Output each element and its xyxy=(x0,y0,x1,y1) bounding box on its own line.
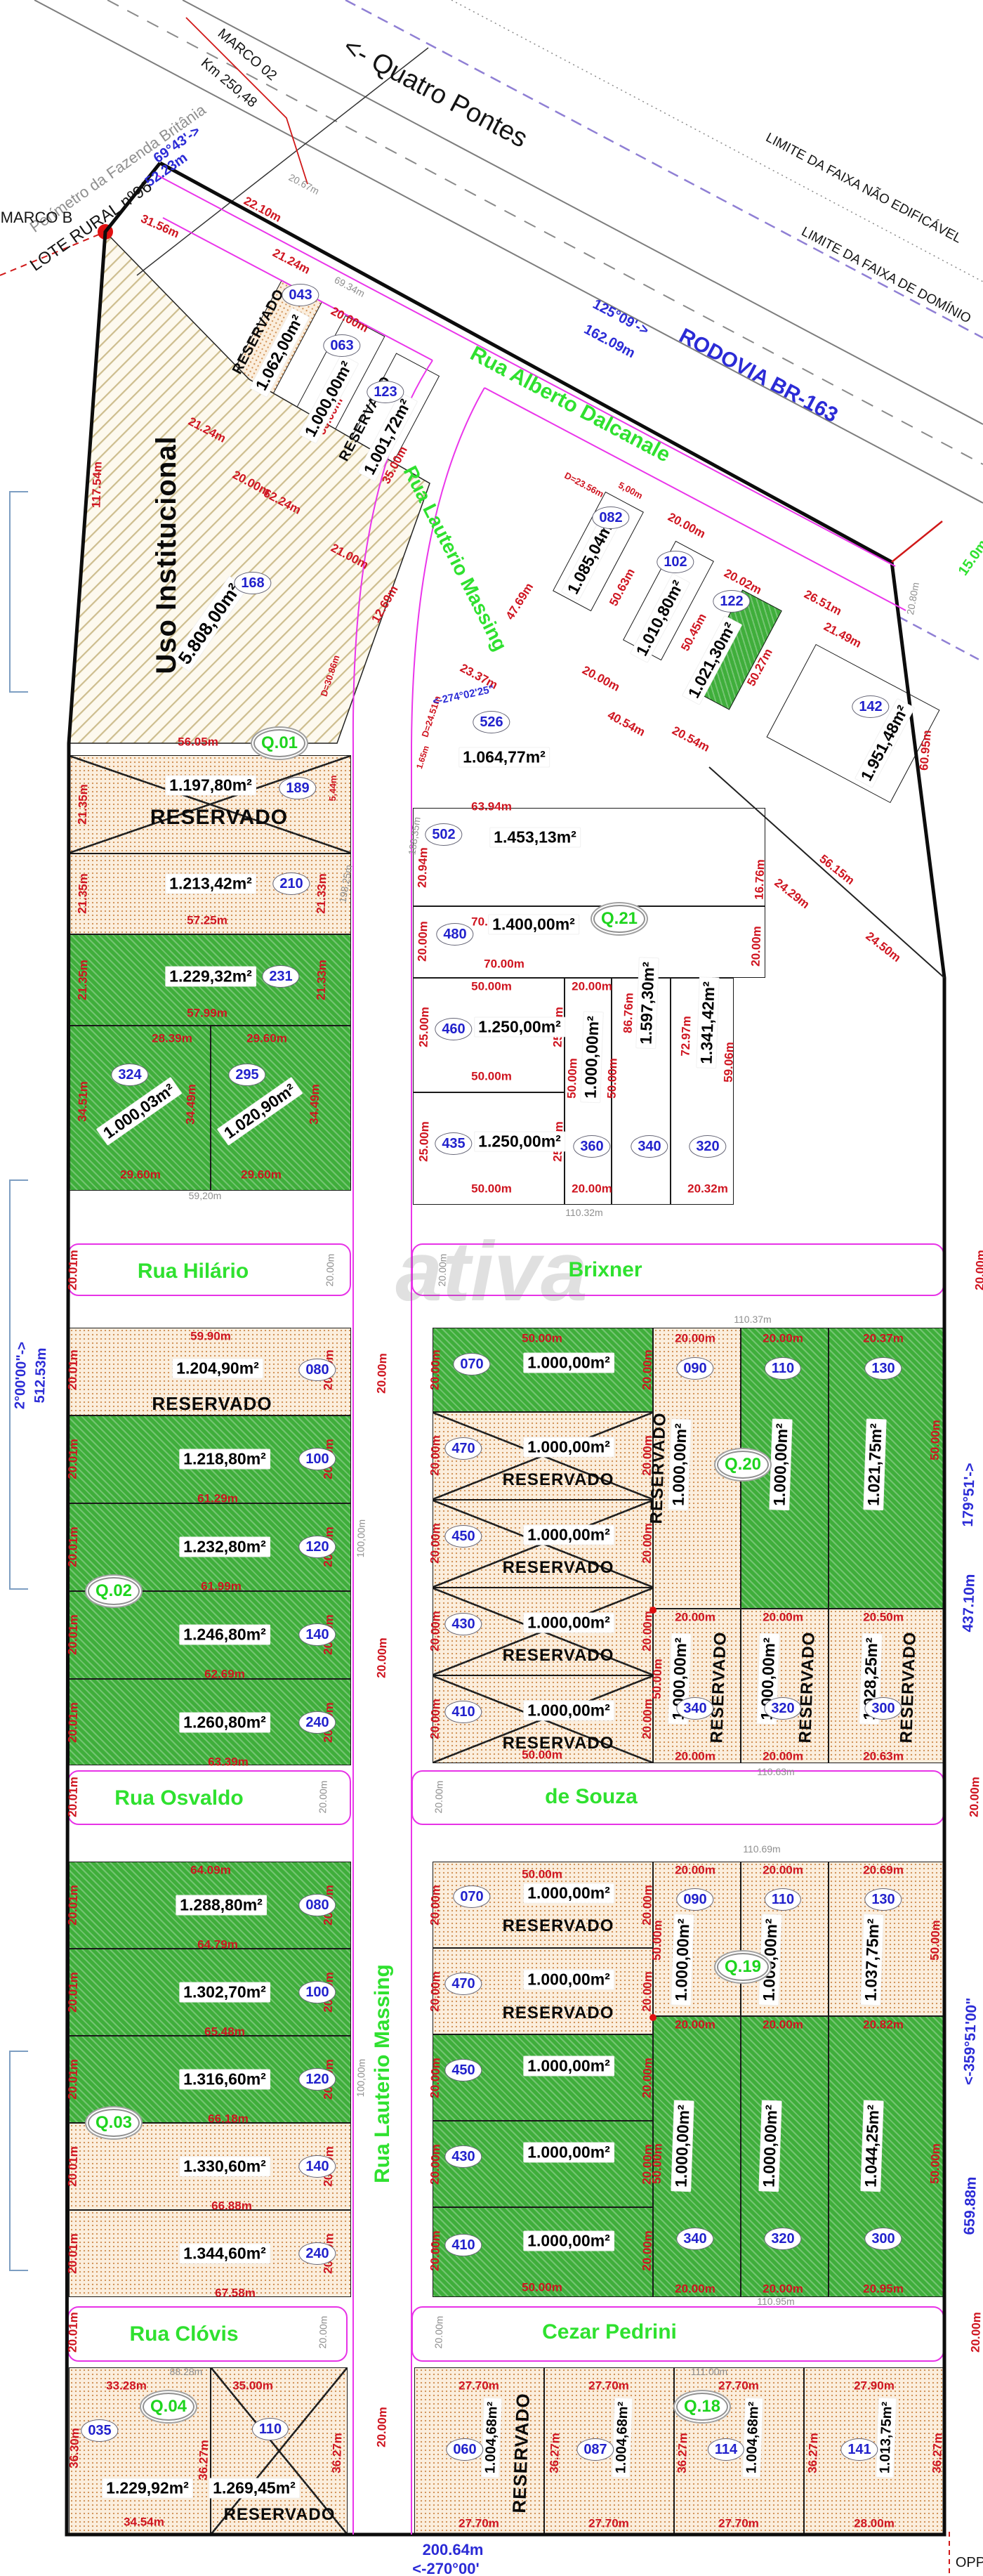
dimension-label: 20.00m xyxy=(675,1864,715,1876)
faixa-dominio-line xyxy=(345,0,983,338)
dimension-label: 34.54m xyxy=(124,2516,164,2528)
dimension-label: 50.00m xyxy=(928,1920,942,1961)
lot-area-label: 1.597,30m² xyxy=(635,957,659,1050)
dimension-gray-label: 20.00m xyxy=(433,2315,444,2348)
lot-number: 295 xyxy=(228,1064,265,1086)
dimension-label: 20.00m xyxy=(675,1333,715,1345)
dimension-label: 29.60m xyxy=(120,1169,161,1181)
lot-rect xyxy=(741,1862,829,2016)
lot-number: 140 xyxy=(298,2155,336,2178)
lot-number: 435 xyxy=(435,1132,472,1155)
dimension-label: 67.58m xyxy=(215,2287,256,2299)
dimension-label: 20.00m xyxy=(375,1637,388,1678)
dimension-label: 20.00m xyxy=(428,1349,442,1390)
dimension-label: 20.00m xyxy=(973,1250,983,1290)
dimension-label: 20.82m xyxy=(863,2019,904,2031)
lot-area-label: 1.000,00m² xyxy=(523,2056,614,2077)
dimension-gray-label: 110.69m xyxy=(743,1844,780,1854)
dimension-label: 20.00m xyxy=(640,1523,654,1564)
lot-area-label: 1.000,00m² xyxy=(523,2143,614,2163)
dimension-label: 20.00m xyxy=(666,511,708,540)
lot-number: 502 xyxy=(425,823,462,846)
dimension-label: 20.50m xyxy=(863,1611,904,1623)
dimension-label: 5,44m xyxy=(328,775,338,801)
dimension-label: 20.00m xyxy=(763,1611,803,1623)
dimension-label: 21.35m xyxy=(76,784,89,825)
dimension-label: 34.49m xyxy=(184,1084,197,1125)
lot-area-label: 5.808,00m² xyxy=(171,575,247,672)
dimension-gray-label: 20.00m xyxy=(437,1253,448,1286)
dimension-label: 36.27m xyxy=(197,2440,210,2480)
dimension-label: 117.54m xyxy=(90,462,103,509)
lot-area-label: 1.453,13m² xyxy=(489,828,581,848)
lot-number: 063 xyxy=(323,334,360,357)
lot-number: 240 xyxy=(298,1711,336,1734)
dimension-label: 50.00m xyxy=(928,2143,942,2184)
reservado-label: RESERVADO xyxy=(152,1394,272,1413)
dimension-label: 28.39m xyxy=(152,1033,192,1045)
dimension-label: 20.32m xyxy=(687,1183,728,1195)
dimension-gray-label: 100,00m xyxy=(355,2059,367,2098)
lot-area-label: 1.000,00m² xyxy=(758,2100,782,2192)
lot-area-label: 1.218,80m² xyxy=(179,1449,270,1470)
dimension-label: 21.33m xyxy=(315,960,328,1000)
survey-note: 2°00'00"-> xyxy=(13,1342,29,1410)
dimension-label: 20.01m xyxy=(66,2233,79,2274)
lot-rect xyxy=(829,1862,944,2016)
lot-area-label: 1.330,60m² xyxy=(179,2157,270,2177)
reservado-label: RESERVADO xyxy=(503,1735,614,1752)
reservado-label: RESERVADO xyxy=(224,2506,336,2523)
lot-number: 120 xyxy=(298,1536,336,1558)
corner-red-segment xyxy=(892,521,942,562)
lot-number: 130 xyxy=(864,1888,902,1911)
dimension-label: 20.00m xyxy=(969,2312,982,2353)
lot-area-label: 1.000,00m² xyxy=(523,1883,614,1904)
lot-number: 043 xyxy=(282,284,319,306)
lot-number: 070 xyxy=(453,1885,490,1908)
lot-number: 430 xyxy=(444,1613,482,1635)
dimension-label: 20.00m xyxy=(640,1699,654,1739)
lot-number: 070 xyxy=(453,1353,490,1375)
dimension-label: 20.01m xyxy=(66,1614,79,1655)
street-name: Rua Alberto Dalcanale xyxy=(467,343,673,466)
dimension-gray-label: 20.80m xyxy=(905,582,921,615)
lot-number: 082 xyxy=(592,506,629,529)
map-note: MARCO B xyxy=(1,210,73,225)
street-name: Rua Osvaldo xyxy=(114,1788,243,1809)
reservado-label: RESERVADO xyxy=(898,1631,919,1744)
dimension-label: 28.00m xyxy=(854,2518,895,2530)
lot-number: 480 xyxy=(436,923,473,946)
lot-number: 460 xyxy=(435,1018,472,1040)
street-name: 15.0m xyxy=(956,537,983,578)
dimension-label: 50.00m xyxy=(650,1920,664,1961)
lot-number: 130 xyxy=(864,1357,902,1380)
dimension-label: 61.99m xyxy=(201,1581,242,1593)
dimension-label: 47.69m xyxy=(504,581,536,622)
dimension-label: 50.63m xyxy=(607,567,637,608)
lot-area-label: 1.000,00m² xyxy=(769,1419,793,1511)
street-band xyxy=(411,2306,944,2362)
street-name: Cezar Pedrini xyxy=(542,2322,677,2343)
dimension-label: 27.70m xyxy=(458,2380,499,2392)
lot-number: 142 xyxy=(852,695,889,718)
lot-area-label: 1.064,77m² xyxy=(458,747,550,768)
lot-number: 340 xyxy=(676,1697,713,1720)
dimension-label: 20.00m xyxy=(640,1971,654,2012)
dimension-label: 50.00m xyxy=(522,1333,562,1345)
dimension-label: D=30.86m xyxy=(319,654,341,698)
dimension-label: 25.00m xyxy=(417,1007,430,1047)
lot-number: 300 xyxy=(864,1697,902,1720)
dimension-label: 36.27m xyxy=(330,2433,343,2473)
dimension-label: 35.00m xyxy=(232,2380,273,2392)
street-name: Rua Hilário xyxy=(138,1261,249,1282)
dimension-label: 20.00m xyxy=(763,1864,803,1876)
faixa-nao-edificavel-line xyxy=(451,0,983,282)
lot-area-label: 1.000,00m² xyxy=(671,1914,694,2006)
lot-number: 340 xyxy=(676,2228,713,2250)
dimension-label: 63.94m xyxy=(471,801,512,813)
lot-area-label: 1.232,80m² xyxy=(179,1537,270,1557)
dimension-label: 20.63m xyxy=(863,1751,904,1763)
lot-number: 360 xyxy=(573,1135,610,1158)
survey-note: 437.10m xyxy=(961,1574,977,1633)
dimension-label: 21.35m xyxy=(76,873,89,914)
lot-area-label: 1.000,00m² xyxy=(523,1437,614,1458)
dimension-label: 20.00m xyxy=(581,664,622,693)
quadra-badge: Q.18 xyxy=(676,2393,728,2421)
map-note: <- Quatro Pontes xyxy=(339,33,532,152)
quadra-badge: Q.02 xyxy=(88,1577,140,1605)
lot-number: 450 xyxy=(444,1525,482,1548)
survey-note: RODOVIA BR-163 xyxy=(675,325,840,426)
dimension-label: 27.70m xyxy=(718,2380,759,2392)
reservado-label: RESERVADO xyxy=(503,2005,614,2022)
dimension-label: 59.06m xyxy=(722,1042,735,1083)
lot-area-label: 1.013,75m² xyxy=(876,2397,897,2478)
dimension-label: 25.00m xyxy=(417,1121,430,1162)
dimension-label: 64.79m xyxy=(197,1939,238,1951)
dimension-label: 20.00m xyxy=(572,1183,612,1195)
lot-number: 141 xyxy=(840,2438,878,2461)
street-name: Rua Lauterio Massing xyxy=(372,1964,393,2183)
reservado-label: RESERVADO xyxy=(648,1412,669,1524)
dimension-label: 20.00m xyxy=(428,2230,442,2271)
dimension-label: 20.00m xyxy=(428,2058,442,2098)
lot-area-label: 1.037,75m² xyxy=(860,1914,884,2006)
lot-area-label: 1.004,68m² xyxy=(612,2397,633,2478)
lot-number: 060 xyxy=(446,2438,483,2461)
street-name: Rua Clóvis xyxy=(129,2324,238,2345)
lot-rect xyxy=(741,2016,829,2297)
dimension-label: 29.60m xyxy=(246,1033,287,1045)
street-name: Rua Lauterio Massing xyxy=(400,463,510,654)
lot-area-label: 1.000,00m² xyxy=(523,2231,614,2251)
lot-area-label: 1.000,00m² xyxy=(523,1353,614,1373)
street-band xyxy=(411,1770,944,1825)
dimension-gray-label: 69.34m xyxy=(333,275,367,299)
lot-area-label: 1.000,00m² xyxy=(523,1525,614,1545)
dimension-label: 86.76m xyxy=(621,993,635,1033)
lot-area-label: 1.400,00m² xyxy=(488,915,579,935)
dimension-label: 20.37m xyxy=(863,1333,904,1345)
dimension-label: 21.24m xyxy=(271,247,312,276)
dimension-label: 21.33m xyxy=(315,873,328,914)
dimension-label: 20.01m xyxy=(66,1439,79,1479)
dimension-gray-label: 110.95m xyxy=(757,2296,794,2306)
dimension-gray-label: 111.00m xyxy=(691,2367,727,2376)
dimension-label: 26.51m xyxy=(803,588,844,617)
dimension-gray-label: 88.28m xyxy=(170,2367,203,2376)
dimension-label: 72.97m xyxy=(679,1016,692,1057)
dimension-label: 50.00m xyxy=(471,981,512,993)
dimension-label: 50.00m xyxy=(471,1183,512,1195)
dimension-label: 21.35m xyxy=(76,960,89,1000)
dimension-label: 65.48m xyxy=(204,2026,245,2038)
reservado-label: Uso Institucional xyxy=(152,436,180,674)
dimension-label: 20.54m xyxy=(671,724,712,754)
lot-area-label: 1.197,80m² xyxy=(165,776,256,796)
dimension-label: 20.00m xyxy=(375,2407,388,2447)
reservado-label: RESERVADO xyxy=(797,1631,818,1744)
dimension-label: 20.00m xyxy=(640,1349,654,1390)
dimension-label: 66.88m xyxy=(211,2200,252,2212)
lot-number: 470 xyxy=(444,1973,482,1995)
watermark: ativa xyxy=(395,1229,588,1314)
lot-number: 168 xyxy=(234,572,271,594)
dimension-label: 36.27m xyxy=(548,2433,561,2473)
lot-number: 324 xyxy=(111,1064,148,1086)
dimension-label: 62.24m xyxy=(262,487,303,516)
dimension-label: 20.00m xyxy=(640,1611,654,1652)
dimension-label: 20.01m xyxy=(66,1526,79,1567)
dimension-label: 27.70m xyxy=(588,2518,629,2530)
dimension-label: 50.00m xyxy=(522,2282,562,2294)
lot-area-label: 1.000,00m² xyxy=(523,1613,614,1633)
lot-area-label: 1.302,70m² xyxy=(179,1982,270,2003)
lot-number: 123 xyxy=(367,381,404,403)
lot-area-label: 1.044,25m² xyxy=(860,2100,884,2192)
lot-number: 189 xyxy=(279,777,316,799)
lot-rect xyxy=(69,755,351,854)
dimension-label: 20.01m xyxy=(66,1250,79,1290)
lot-number: 231 xyxy=(262,965,299,988)
lot-number: 110 xyxy=(252,2418,289,2440)
lot-number: 110 xyxy=(765,1888,801,1911)
dimension-label: 56.15m xyxy=(817,853,857,887)
lot-number: 035 xyxy=(81,2419,118,2442)
lot-area-label: 1.288,80m² xyxy=(176,1895,267,1916)
dimension-label: 20.00m xyxy=(763,1751,803,1763)
dimension-label: 27.70m xyxy=(588,2380,629,2392)
dimension-label: 57.25m xyxy=(187,915,227,927)
highway-edge-line xyxy=(183,0,983,424)
reservado-label: RESERVADO xyxy=(510,2393,532,2513)
dimension-label: 20.00m xyxy=(749,926,763,967)
dimension-label: 50.00m xyxy=(650,1659,664,1699)
lot-number: 410 xyxy=(444,2234,482,2256)
dimension-label: 16.76m xyxy=(753,859,766,900)
dimension-label: 33.28m xyxy=(106,2380,147,2392)
dimension-label: 20.00m xyxy=(416,921,429,962)
survey-note: 179°51'-> xyxy=(961,1463,977,1527)
survey-bracket xyxy=(10,2051,28,2270)
reservado-label: RESERVADO xyxy=(503,1647,614,1664)
dimension-label: 20.01m xyxy=(66,1702,79,1743)
dimension-label: 50.00m xyxy=(565,1058,579,1099)
faixa-dominio-line xyxy=(899,617,983,662)
dimension-label: 20.01m xyxy=(66,1885,79,1926)
quadra-badge: Q.21 xyxy=(593,905,645,933)
dimension-gray-label: 20.00m xyxy=(317,2315,329,2348)
dimension-label: 20.00m xyxy=(640,2230,654,2271)
dimension-label: 27.70m xyxy=(718,2518,759,2530)
lot-number: 240 xyxy=(298,2242,336,2265)
lot-number: 320 xyxy=(764,1697,801,1720)
dimension-label: 27.90m xyxy=(854,2380,895,2392)
lot-area-label: 1.000,00m² xyxy=(523,1701,614,1721)
lot-area-label: 1.000,00m² xyxy=(671,2100,694,2192)
lot-area-label: 1.000,00m² xyxy=(523,1970,614,1990)
dimension-label: 12.69m xyxy=(369,584,400,625)
dimension-label: 34.51m xyxy=(76,1081,89,1122)
lot-rect xyxy=(69,2367,211,2535)
dimension-label: 34.49m xyxy=(308,1084,321,1125)
lot-area-label: 1.341,42m² xyxy=(696,977,720,1069)
lot-number: 120 xyxy=(298,2068,336,2091)
lot-number: 300 xyxy=(864,2228,902,2250)
dimension-label: 63.39m xyxy=(208,1756,249,1768)
street-name: de Souza xyxy=(545,1786,638,1807)
reservado-label: RESERVADO xyxy=(503,1918,614,1935)
quadra-badge: Q.01 xyxy=(253,729,305,757)
lot-number: 122 xyxy=(713,590,750,613)
quadra-badge: Q.04 xyxy=(143,2393,194,2421)
dimension-label: 20.00m xyxy=(572,981,612,993)
quadra-badge: Q.20 xyxy=(717,1451,769,1479)
lot-number: 100 xyxy=(298,1981,336,2003)
lot-rect xyxy=(413,808,765,906)
dimension-gray-label: 110.63m xyxy=(757,1767,794,1777)
lot-area-label: 1.229,92m² xyxy=(102,2478,193,2499)
dimension-label: 64.09m xyxy=(190,1864,231,1876)
dimension-label: 20.00m xyxy=(763,1333,803,1345)
lot-number: 470 xyxy=(444,1437,482,1460)
lot-number: 430 xyxy=(444,2145,482,2168)
dimension-label: 50.00m xyxy=(605,1058,619,1099)
dimension-gray-label: 110.32m xyxy=(565,1208,602,1217)
dimension-label: 36.27m xyxy=(806,2433,819,2473)
quadra-badge: Q.19 xyxy=(717,1953,769,1981)
dimension-label: 36.30m xyxy=(67,2428,81,2469)
lot-number: 526 xyxy=(473,711,510,733)
dimension-label: 20.94m xyxy=(416,847,429,888)
dimension-gray-label: 100,00m xyxy=(355,1519,367,1558)
lot-area-label: 1.246,80m² xyxy=(179,1625,270,1645)
dimension-label: 27.70m xyxy=(458,2518,499,2530)
lot-area-label: 1.250,00m² xyxy=(474,1017,565,1038)
lot-area-label: 1.000,00m² xyxy=(668,1419,692,1511)
lot-rect xyxy=(766,644,939,803)
reservado-label: RESERVADO xyxy=(503,1472,614,1489)
dimension-label: 22.10m xyxy=(242,195,284,224)
dimension-label: 40.54m xyxy=(606,709,647,738)
dimension-label: 20.95m xyxy=(863,2283,904,2295)
lot-number: 087 xyxy=(576,2438,614,2461)
dimension-label: 21.49m xyxy=(822,620,864,650)
dimension-label: 20.00m xyxy=(428,1971,442,2012)
map-note: OPP xyxy=(956,2556,983,2570)
dimension-label: 20.00m xyxy=(763,2283,803,2295)
dimension-label: 20.00m xyxy=(675,2283,715,2295)
dimension-label: 20.01m xyxy=(66,2146,79,2187)
dimension-label: 1.65m xyxy=(415,745,430,770)
lot-area-label: 1.000,00m² xyxy=(580,1012,604,1104)
lot-number: 100 xyxy=(298,1448,336,1470)
survey-note: 200.64m xyxy=(423,2542,484,2558)
reservado-label: RESERVADO xyxy=(708,1631,730,1744)
lot-number: 114 xyxy=(708,2438,744,2461)
lot-number: 110 xyxy=(765,1357,801,1380)
dimension-label: 57.99m xyxy=(187,1007,227,1019)
quadra-badge: Q.03 xyxy=(88,2109,140,2137)
map-note: LIMITE DA FAIXA NÃO EDIFICÁVEL xyxy=(764,131,964,246)
dimension-gray-label: 59,20m xyxy=(189,1191,222,1201)
dimension-label: 50.00m xyxy=(928,1420,942,1460)
dimension-label: 20.00m xyxy=(675,1611,715,1623)
dimension-label: 29.60m xyxy=(241,1169,282,1181)
lot-area-label: 1.269,45m² xyxy=(209,2478,300,2499)
dimension-label: 21.24m xyxy=(187,415,228,445)
dimension-label: 5,00m xyxy=(617,480,645,501)
reservado-label: RESERVADO xyxy=(150,807,288,828)
dimension-label: 50.00m xyxy=(650,2143,664,2184)
lot-area-label: 1.316,60m² xyxy=(179,2070,270,2090)
lot-area-label: 1.344,60m² xyxy=(179,2244,270,2264)
reservado-label: RESERVADO xyxy=(503,1560,614,1576)
lot-number: 450 xyxy=(444,2059,482,2081)
survey-note: 659.88m xyxy=(962,2176,979,2235)
dimension-label: 20.00m xyxy=(428,1885,442,1926)
dimension-label: 24.50m xyxy=(864,930,903,965)
dimension-label: 24.29m xyxy=(772,877,812,911)
lot-rect xyxy=(653,2016,741,2297)
dimension-label: 20.69m xyxy=(863,1864,904,1876)
lot-area-label: 1.229,32m² xyxy=(165,967,256,987)
dimension-label: 59.90m xyxy=(190,1331,231,1342)
lot-number: 080 xyxy=(298,1359,336,1381)
lot-number: 410 xyxy=(444,1701,482,1723)
dimension-label: D=23.56m xyxy=(563,471,605,499)
dimension-label: 36.27m xyxy=(675,2433,689,2473)
street-name: Brixner xyxy=(568,1260,642,1281)
survey-bracket xyxy=(10,492,28,692)
dimension-label: 20.00m xyxy=(675,2019,715,2031)
lot-number: 090 xyxy=(676,1888,713,1911)
lot-area-label: 1.021,75m² xyxy=(863,1419,887,1511)
dimension-label: 20.00m xyxy=(428,1435,442,1476)
lot-number: 140 xyxy=(298,1623,336,1646)
dimension-label: 20.00m xyxy=(375,1353,388,1394)
lot-number: 080 xyxy=(298,1894,336,1916)
dimension-label: 62.69m xyxy=(204,1668,245,1680)
lot-area-label: 1.004,68m² xyxy=(742,2397,763,2478)
survey-note: <-274°02'25" xyxy=(432,684,495,707)
plat-map: ativa 31.56m22.10m21.24m20.00m21.24m20.0… xyxy=(0,0,983,2576)
dimension-label: 36.27m xyxy=(930,2433,944,2473)
